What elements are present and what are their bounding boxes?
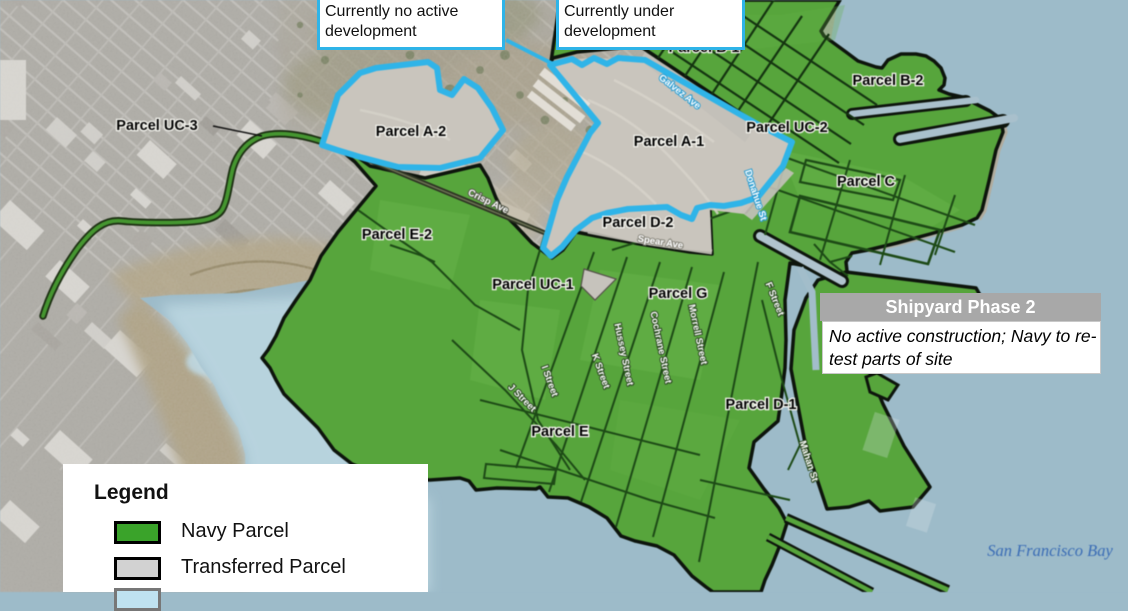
svg-text:Parcel E: Parcel E <box>531 424 589 440</box>
svg-text:Parcel D-2: Parcel D-2 <box>603 215 674 231</box>
svg-text:Parcel E-2: Parcel E-2 <box>362 227 432 243</box>
svg-text:Parcel UC-1: Parcel UC-1 <box>492 277 573 293</box>
svg-text:Parcel G: Parcel G <box>649 286 708 302</box>
svg-text:Parcel D-1: Parcel D-1 <box>726 397 797 413</box>
svg-text:Parcel B-2: Parcel B-2 <box>853 73 924 89</box>
svg-text:Parcel UC-2: Parcel UC-2 <box>746 120 827 136</box>
svg-text:Parcel A-2: Parcel A-2 <box>376 124 446 140</box>
svg-text:Parcel UC-3: Parcel UC-3 <box>116 118 197 134</box>
svg-text:San Francisco Bay: San Francisco Bay <box>987 541 1113 560</box>
svg-text:Parcel C: Parcel C <box>837 174 896 190</box>
svg-text:Parcel A-1: Parcel A-1 <box>634 134 704 150</box>
